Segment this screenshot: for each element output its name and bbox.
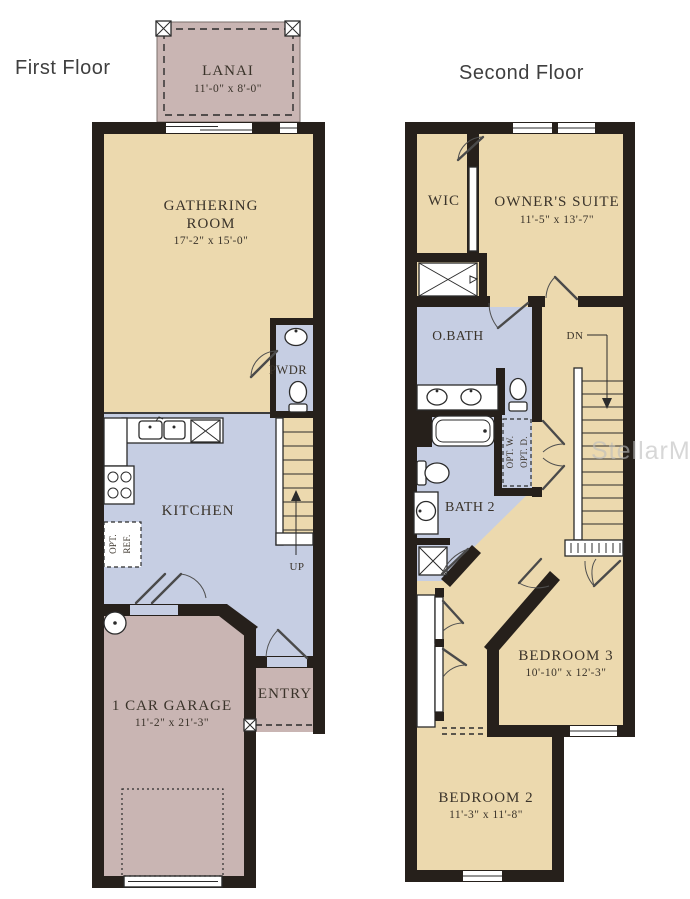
bedroom3-label: BEDROOM 3 (518, 648, 613, 664)
gathering-room-floor (104, 318, 270, 414)
pwdr-toilet-icon (289, 382, 307, 413)
window (463, 871, 502, 881)
obath-door-opening (490, 296, 528, 307)
window (558, 123, 595, 133)
shower-icon (419, 263, 477, 296)
opt-dryer-label: OPT. D. (519, 436, 529, 468)
floor-plan-image: First Floor LANAI 11'-0" x 8'-0" GATHERI… (0, 0, 690, 899)
window (570, 726, 617, 736)
stove-icon (104, 466, 134, 504)
bath2-sink-icon (414, 492, 438, 534)
bath2-label: BATH 2 (445, 500, 495, 515)
second-floor-plan: Second Floor WIC OWNER'S SUITE 11'-5" x … (405, 62, 635, 882)
window (513, 123, 552, 133)
obath-toilet-icon (509, 379, 527, 412)
owners-suite-dims: 11'-5" x 13'-7" (520, 214, 594, 226)
pwdr-sink-icon (285, 329, 307, 346)
bathtub-icon (432, 416, 494, 446)
bath2-shower-icon (419, 547, 447, 575)
bedroom2-dims: 11'-3" x 11'-8" (449, 809, 523, 821)
pwdr-label: PWDR (269, 363, 307, 377)
stellar-mls-watermark: StellarMLS (591, 437, 690, 465)
dn-label: DN (567, 330, 584, 342)
gathering-room-label: GATHERING (164, 198, 259, 214)
owners-suite-label: OWNER'S SUITE (494, 194, 619, 210)
obath-label: O.BATH (432, 328, 483, 343)
gathering-room-dims: 17'-2" x 15'-0" (174, 235, 249, 247)
porch-column-icon (244, 719, 256, 731)
lanai-column-icon (156, 21, 171, 36)
garage-label: 1 CAR GARAGE (112, 698, 232, 714)
kitchen-label: KITCHEN (162, 503, 235, 519)
vanity-double-sink-icon (417, 385, 498, 410)
water-heater-icon (104, 612, 126, 634)
suite-door-opening (545, 296, 578, 307)
sliding-door (166, 123, 252, 133)
opt-washer-label: OPT. W. (505, 436, 515, 469)
lanai-dims: 11'-0" x 8'-0" (194, 83, 262, 95)
window (280, 123, 297, 133)
dishwasher-icon (191, 420, 220, 442)
bedroom2-label: BEDROOM 2 (438, 790, 533, 806)
entry-label: ENTRY (258, 686, 312, 702)
wic-label: WIC (428, 193, 460, 209)
gathering-room-label: ROOM (186, 216, 235, 232)
stairs-up (276, 418, 313, 555)
bedroom3-dims: 10'-10" x 12'-3" (526, 667, 607, 679)
up-label: UP (289, 561, 304, 573)
bath2-toilet-icon (417, 461, 449, 485)
second-floor-title: Second Floor (459, 62, 584, 84)
lanai-label: LANAI (202, 63, 254, 79)
first-floor-plan: First Floor LANAI 11'-0" x 8'-0" GATHERI… (15, 21, 325, 888)
lanai-column-icon (285, 21, 300, 36)
floor-plan-svg: First Floor LANAI 11'-0" x 8'-0" GATHERI… (0, 0, 690, 899)
garage-door (124, 876, 222, 887)
opt-ref-label: OPT. (108, 534, 118, 554)
opt-ref-label: REF. (122, 534, 132, 553)
first-floor-title: First Floor (15, 57, 111, 79)
garage-dims: 11'-2" x 21'-3" (135, 717, 209, 729)
garage-floor (104, 616, 244, 876)
